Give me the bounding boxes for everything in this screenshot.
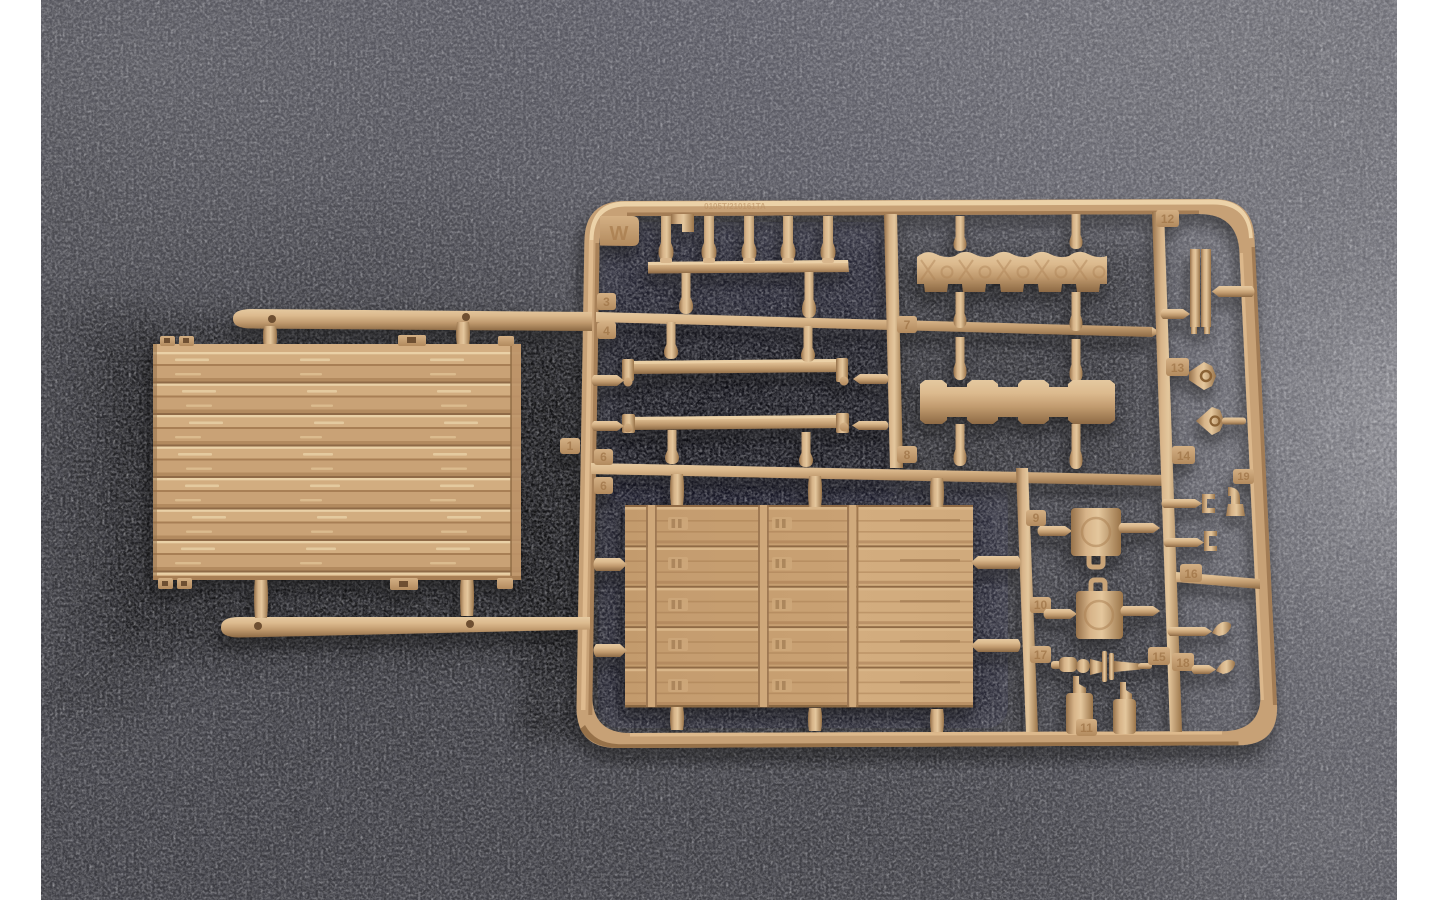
svg-text:1: 1 — [567, 439, 574, 453]
svg-text:11: 11 — [1080, 721, 1093, 735]
svg-text:6: 6 — [600, 450, 607, 464]
svg-text:4: 4 — [603, 324, 610, 338]
svg-text:16: 16 — [1184, 567, 1198, 581]
svg-text:3: 3 — [603, 295, 610, 309]
svg-text:12: 12 — [1161, 212, 1175, 226]
svg-text:15: 15 — [1152, 650, 1166, 664]
svg-text:0105T/210161TA: 0105T/210161TA — [704, 202, 766, 211]
svg-text:19: 19 — [1237, 471, 1249, 483]
svg-text:13: 13 — [1171, 361, 1185, 375]
svg-text:18: 18 — [1176, 656, 1190, 670]
svg-text:6: 6 — [600, 479, 607, 493]
svg-text:9: 9 — [1033, 511, 1040, 525]
svg-text:14: 14 — [1177, 449, 1191, 463]
svg-text:8: 8 — [904, 448, 911, 462]
svg-text:17: 17 — [1034, 648, 1048, 662]
svg-text:7: 7 — [904, 318, 911, 332]
svg-text:W: W — [610, 223, 629, 245]
